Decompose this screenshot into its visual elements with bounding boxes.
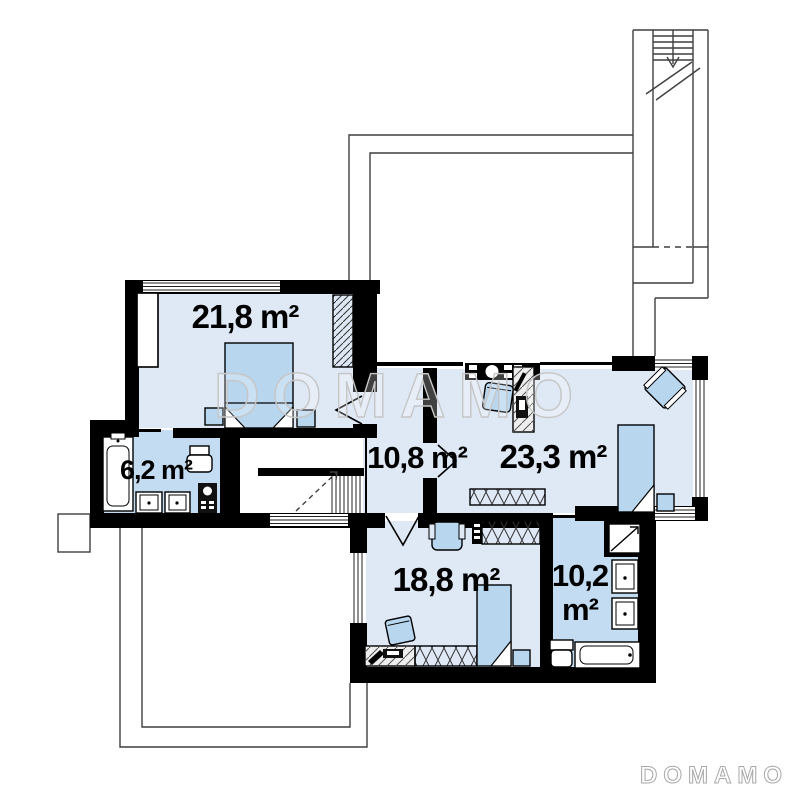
- roof-outline: [349, 135, 633, 280]
- wardrobe-icon: [470, 489, 545, 505]
- area-label-bathroom-left: 6,2 m²: [120, 455, 193, 485]
- nightstand-icon: [657, 494, 674, 511]
- sink-icon: [165, 492, 190, 513]
- wardrobe-icon: [333, 295, 353, 367]
- wardrobe-icon: [482, 521, 540, 544]
- wardrobe-icon: [137, 293, 158, 367]
- area-label-bedroom-right: 23,3 m²: [500, 438, 608, 475]
- window-bedroom-right-side: [693, 380, 707, 497]
- floor-plan-page: DOMAMO 21,8 m² 6,2 m² 10,8 m² 23,3 m² 18…: [0, 0, 800, 793]
- floor-plan-svg: DOMAMO 21,8 m² 6,2 m² 10,8 m² 23,3 m² 18…: [0, 0, 800, 793]
- washing-machine-icon: [198, 483, 217, 513]
- stairwell: [296, 472, 360, 513]
- nightstand-icon: [513, 650, 530, 666]
- single-bed-icon: [618, 425, 654, 512]
- window-bedroom-bottom-side: [351, 553, 366, 623]
- wardrobe-icon: [415, 646, 477, 666]
- toilet-icon: [550, 640, 573, 667]
- armchair-icon: [385, 616, 416, 646]
- terrace-outline: [58, 514, 367, 747]
- room-fills: [104, 294, 694, 667]
- area-label-bedroom-top-left: 21,8 m²: [192, 298, 300, 335]
- watermark-corner-logo: DOMAMO: [640, 762, 788, 789]
- area-label-bathroom-bottom-right-value: 10,2: [552, 558, 608, 593]
- chair-icon: [429, 522, 465, 550]
- watermark-center: DOMAMO: [214, 361, 586, 431]
- window-stairwell: [270, 514, 348, 526]
- area-label-hall: 10,8 m²: [367, 440, 468, 475]
- area-label-bedroom-bottom: 18,8 m²: [393, 561, 501, 598]
- shower-icon: [604, 520, 644, 557]
- vent-stub-icon: [472, 521, 482, 544]
- desk-icon: [365, 646, 415, 666]
- sink-icon: [612, 598, 638, 629]
- bathtub-icon: [575, 642, 640, 668]
- sink-icon: [612, 560, 638, 593]
- sink-icon: [136, 492, 162, 513]
- exterior-staircase: [633, 30, 708, 356]
- area-label-bathroom-bottom-right-unit: m²: [562, 592, 599, 627]
- window-top-bedroom: [143, 281, 280, 292]
